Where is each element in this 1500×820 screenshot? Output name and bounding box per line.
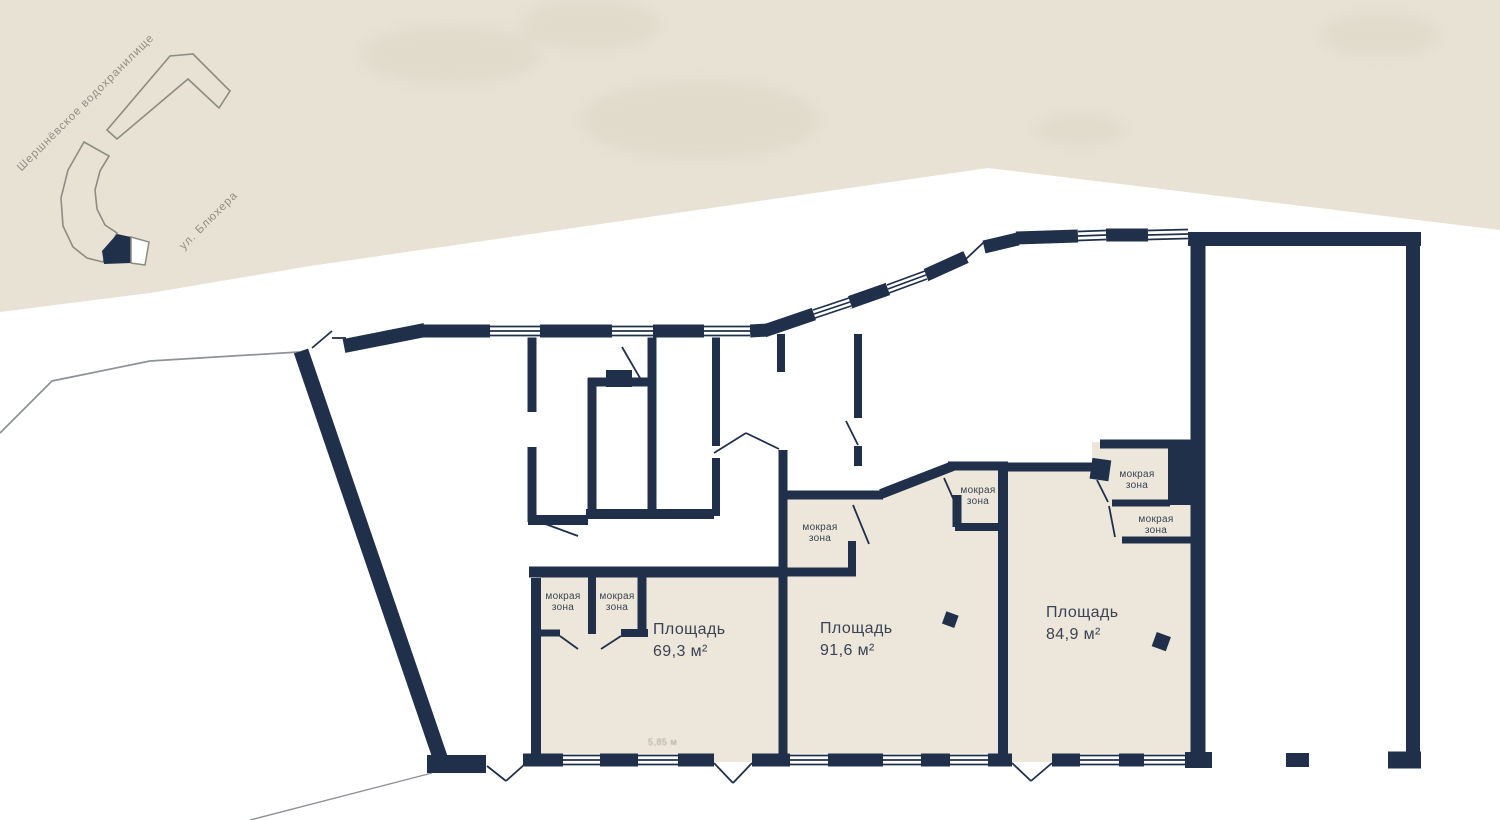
window [490,327,540,336]
window [638,756,678,765]
window [790,756,828,765]
building-annex-outline [131,237,149,265]
window [950,756,988,765]
floor-plan-svg: Шершнёвское водохранилище ул. Блюхера [0,0,1500,820]
room-91-6 [787,464,1008,762]
faint-dimension-label: 5,85 м [648,737,677,747]
window [883,756,921,765]
window [612,327,653,336]
window [563,756,600,765]
floor-plan-page: Шершнёвское водохранилище ул. Блюхера [0,0,1500,820]
window [1080,756,1119,765]
window [1148,230,1188,240]
window [1078,231,1106,241]
window [704,327,750,336]
window [1144,756,1185,765]
room-84-9 [1002,442,1196,762]
